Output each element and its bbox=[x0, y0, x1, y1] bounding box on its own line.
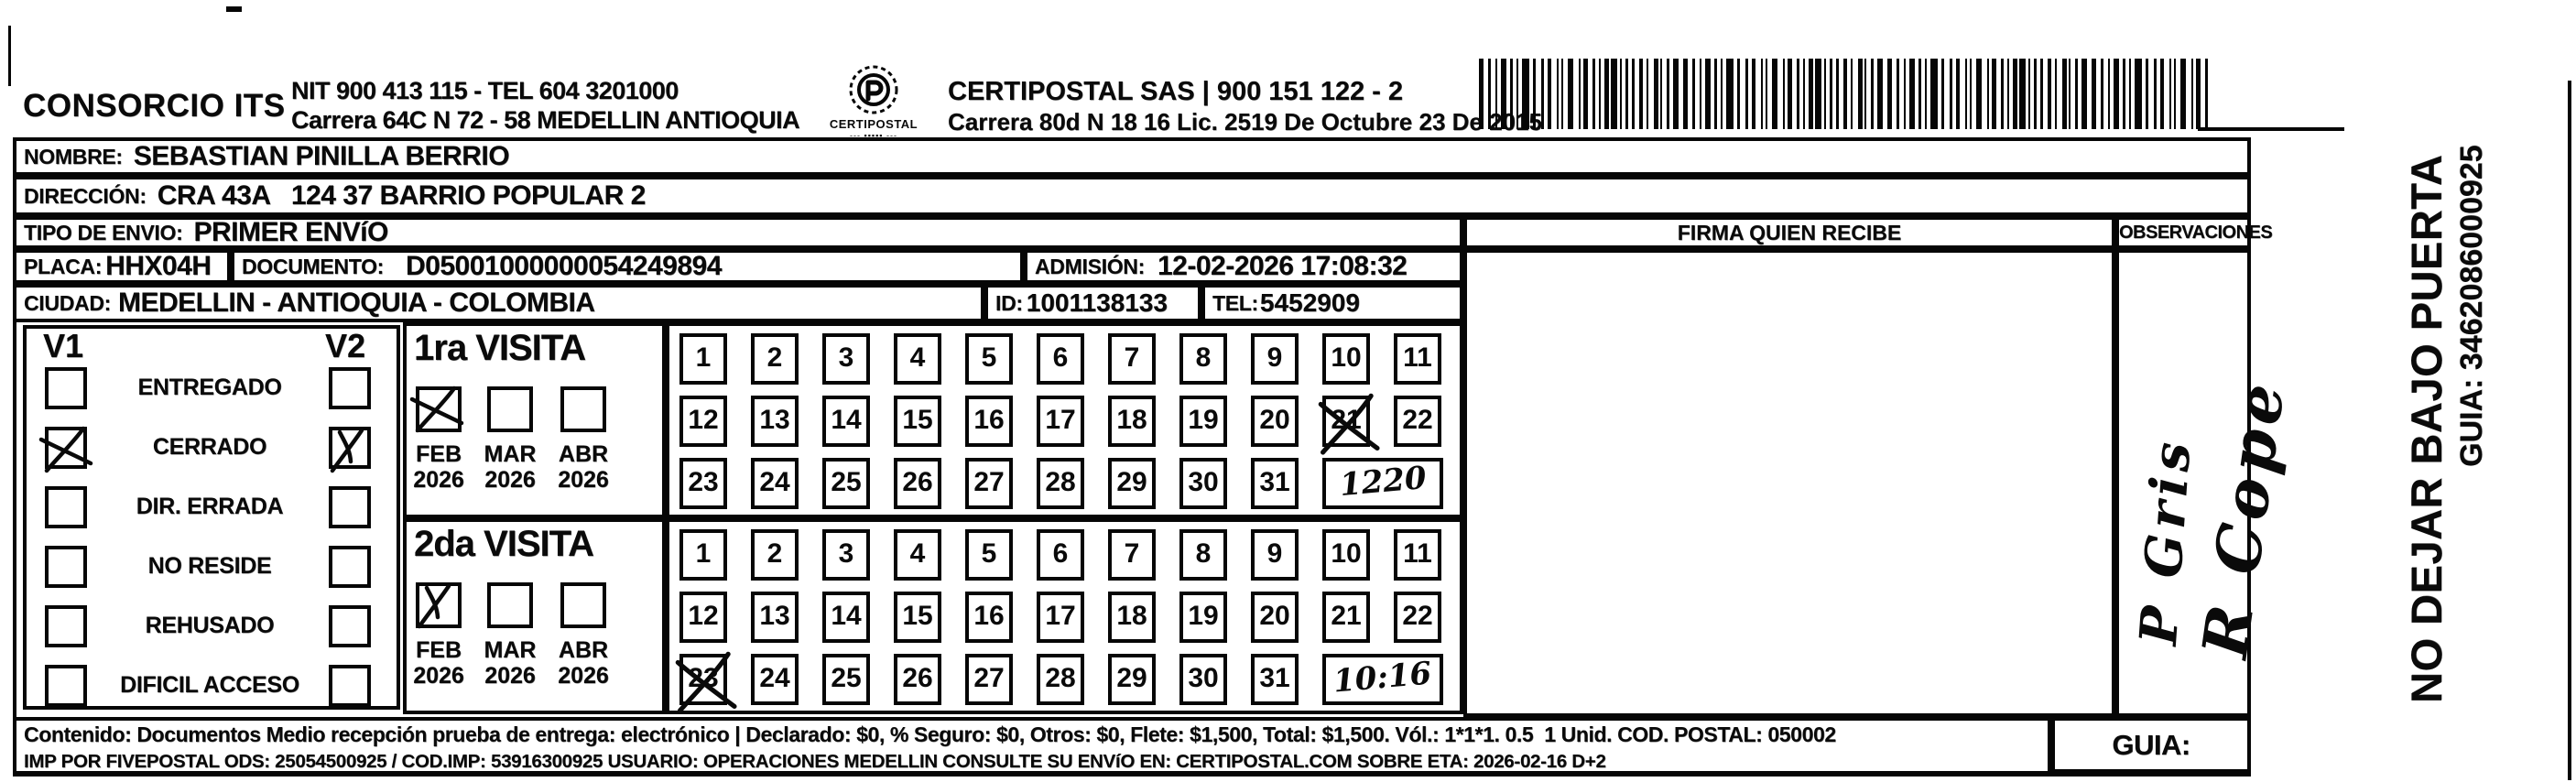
day-cell-14: 14 bbox=[822, 592, 870, 643]
direccion-label: DIRECCIÓN: bbox=[24, 184, 147, 209]
month-checkbox-feb bbox=[416, 582, 462, 628]
barcode-bar bbox=[1788, 59, 1792, 129]
month-checkbox-mar bbox=[487, 582, 533, 628]
handwritten-x-mark bbox=[414, 385, 465, 436]
visit-box-2: 2da VISITAFEB2026MAR2026ABR2026 bbox=[403, 518, 666, 714]
day-cell-13: 13 bbox=[751, 396, 799, 447]
month-checkbox-mar bbox=[487, 386, 533, 432]
barcode-bar bbox=[1783, 59, 1785, 129]
day-cell-10: 10 bbox=[1322, 333, 1370, 385]
barcode-bar bbox=[2034, 59, 2037, 129]
barcode-bar bbox=[1897, 59, 1899, 129]
barcode-bar bbox=[1941, 59, 1944, 129]
field-documento: DOCUMENTO: D05001000000054249894 bbox=[231, 249, 1024, 284]
day-cell-28: 28 bbox=[1037, 654, 1084, 705]
day-cell-27: 27 bbox=[965, 654, 1013, 705]
month-year-abr: 2026 bbox=[551, 663, 615, 690]
field-direccion: DIRECCIÓN: CRA 43A 124 37 BARRIO POPULAR… bbox=[13, 176, 2251, 216]
certipostal-logo-icon bbox=[848, 64, 899, 115]
barcode-bar bbox=[2129, 59, 2131, 129]
barcode-bar bbox=[1824, 59, 1826, 129]
month-label-abr: ABR bbox=[551, 441, 615, 468]
barcode-bar bbox=[1620, 59, 1622, 129]
checkbox-no-reside-v2 bbox=[329, 546, 371, 588]
barcode-bar bbox=[1611, 59, 1617, 129]
admision-label: ADMISIÓN: bbox=[1035, 255, 1145, 279]
company-name: CONSORCIO ITS bbox=[23, 88, 286, 125]
day-cell-16: 16 bbox=[965, 396, 1013, 447]
barcode-bar bbox=[1851, 59, 1853, 129]
day-cell-9: 9 bbox=[1251, 529, 1299, 581]
day-cell-27: 27 bbox=[965, 458, 1013, 509]
logo-caption: CERTIPOSTAL bbox=[821, 117, 927, 131]
field-placa: PLACA: HHX04H bbox=[13, 249, 231, 284]
day-cell-30: 30 bbox=[1179, 458, 1227, 509]
barcode-bar bbox=[1772, 59, 1777, 129]
barcode-bar bbox=[1647, 59, 1648, 129]
guia-box: GUIA: 3462086000925 bbox=[2051, 717, 2251, 773]
day-cell-25: 25 bbox=[822, 458, 870, 509]
admision-value: 12-02-2026 17:08:32 bbox=[1158, 251, 1407, 282]
day-cell-21: 21 bbox=[1322, 396, 1370, 447]
barcode-bar bbox=[2191, 59, 2193, 129]
barcode-bar bbox=[1843, 59, 1847, 129]
barcode-bar bbox=[2146, 59, 2148, 129]
month-year-feb: 2026 bbox=[407, 467, 471, 494]
footer-imp-line: IMP POR FIVEPOSTAL ODS: 25054500925 / CO… bbox=[16, 749, 2048, 774]
barcode-bar bbox=[1714, 59, 1717, 129]
barcode-bar bbox=[1970, 59, 1972, 129]
day-cell-31: 31 bbox=[1251, 654, 1299, 705]
no-dejar-warning: NO DEJAR BAJO PUERTA bbox=[2401, 62, 2451, 703]
barcode-bar bbox=[1815, 59, 1821, 129]
day-cell-7: 7 bbox=[1108, 333, 1156, 385]
barcode-bar bbox=[2007, 59, 2009, 129]
barcode-bar bbox=[1654, 59, 1658, 129]
barcode-bar bbox=[2108, 59, 2110, 129]
documento-label: DOCUMENTO: bbox=[242, 255, 384, 279]
month-year-mar: 2026 bbox=[478, 467, 542, 494]
scan-artifact bbox=[8, 26, 11, 86]
field-id: ID: 1001138133 bbox=[984, 284, 1201, 322]
barcode-bar bbox=[1516, 59, 1518, 129]
checkbox-dir-errada-v2 bbox=[329, 486, 371, 528]
barcode-bar bbox=[2062, 59, 2067, 129]
barcode-bar bbox=[2081, 59, 2087, 129]
day-cell-30: 30 bbox=[1179, 654, 1227, 705]
month-year-mar: 2026 bbox=[478, 663, 542, 690]
day-cell-26: 26 bbox=[894, 458, 941, 509]
month-label-mar: MAR bbox=[478, 441, 542, 468]
barcode-bar bbox=[1604, 59, 1609, 129]
partner-line: CERTIPOSTAL SAS | 900 151 122 - 2 bbox=[948, 77, 1403, 107]
scanned-delivery-form: CONSORCIO ITS NIT 900 413 115 - TEL 604 … bbox=[0, 0, 2576, 782]
barcode-bar bbox=[2040, 59, 2043, 129]
month-label-abr: ABR bbox=[551, 637, 615, 664]
barcode-bar bbox=[1976, 59, 1982, 129]
barcode-bar bbox=[1692, 59, 1695, 129]
placa-label: PLACA: bbox=[24, 255, 102, 279]
barcode-bar bbox=[1673, 59, 1679, 129]
barcode-bar bbox=[2180, 59, 2186, 129]
partner-address: Carrera 80d N 18 16 Lic. 2519 De Octubre… bbox=[948, 108, 1542, 136]
barcode-bar bbox=[1667, 59, 1669, 129]
day-cell-19: 19 bbox=[1179, 592, 1227, 643]
day-cell-3: 3 bbox=[822, 333, 870, 385]
tel-value: 5452909 bbox=[1260, 288, 1360, 318]
barcode-bar bbox=[2028, 59, 2030, 129]
day-cell-15: 15 bbox=[894, 396, 941, 447]
barcode-bar bbox=[1737, 59, 1740, 129]
footer-content-line: Contenido: Documentos Medio recepción pr… bbox=[16, 721, 2048, 749]
ciudad-value: MEDELLIN - ANTIOQUIA - COLOMBIA bbox=[118, 288, 595, 319]
barcode-bar bbox=[1579, 59, 1581, 129]
nombre-label: NOMBRE: bbox=[24, 145, 123, 169]
field-ciudad: CIUDAD: MEDELLIN - ANTIOQUIA - COLOMBIA bbox=[13, 284, 984, 322]
status-label-no-reside: NO RESIDE bbox=[100, 553, 320, 580]
company-address: Carrera 64C N 72 - 58 MEDELLIN ANTIOQUIA bbox=[291, 106, 799, 135]
checkbox-dir-errada-v1 bbox=[45, 486, 87, 528]
barcode-bar bbox=[1987, 59, 1989, 129]
barcode-bar bbox=[1488, 59, 1491, 129]
month-year-feb: 2026 bbox=[407, 663, 471, 690]
scan-artifact bbox=[2568, 81, 2571, 780]
day-cell-11: 11 bbox=[1394, 529, 1441, 581]
time-box: 10:16 bbox=[1322, 654, 1443, 705]
barcode-bar bbox=[1479, 59, 1484, 129]
barcode-bar bbox=[1950, 59, 1952, 129]
day-cell-2: 2 bbox=[751, 529, 799, 581]
day-cell-6: 6 bbox=[1037, 333, 1084, 385]
barcode-bar bbox=[1700, 59, 1701, 129]
month-checkbox-feb bbox=[416, 386, 462, 432]
month-label-feb: FEB bbox=[407, 637, 471, 664]
month-year-abr: 2026 bbox=[551, 467, 615, 494]
day-cell-17: 17 bbox=[1037, 592, 1084, 643]
barcode-bar bbox=[1501, 59, 1506, 129]
checkbox-cerrado-v2 bbox=[329, 427, 371, 469]
handwritten-cross-mark bbox=[676, 652, 734, 711]
day-cell-24: 24 bbox=[751, 654, 799, 705]
checkbox-cerrado-v1 bbox=[45, 427, 87, 469]
day-cell-1: 1 bbox=[679, 529, 727, 581]
barcode-bar bbox=[2048, 59, 2051, 129]
barcode-bar bbox=[2135, 59, 2142, 129]
checkbox-dificil-acceso-v1 bbox=[45, 665, 87, 707]
barcode-bar bbox=[2160, 59, 2164, 129]
barcode-bar bbox=[2092, 59, 2096, 129]
checkbox-no-reside-v1 bbox=[45, 546, 87, 588]
barcode-bar bbox=[2101, 59, 2103, 129]
month-label-feb: FEB bbox=[407, 441, 471, 468]
day-cell-16: 16 bbox=[965, 592, 1013, 643]
barcode-bar bbox=[1992, 59, 1996, 129]
day-cell-26: 26 bbox=[894, 654, 941, 705]
day-cell-4: 4 bbox=[894, 529, 941, 581]
checkbox-entregado-v2 bbox=[329, 367, 371, 409]
barcode-bar bbox=[1726, 59, 1734, 129]
scan-artifact bbox=[226, 6, 242, 12]
barcode-bar bbox=[1909, 59, 1915, 129]
day-cell-24: 24 bbox=[751, 458, 799, 509]
barcode-bar bbox=[2174, 59, 2176, 129]
barcode-bar bbox=[2205, 59, 2208, 129]
status-label-cerrado: CERRADO bbox=[100, 434, 320, 461]
barcode-bar bbox=[1522, 59, 1529, 129]
day-cell-22: 22 bbox=[1394, 592, 1441, 643]
month-checkbox-abr bbox=[560, 582, 606, 628]
visit-title: 2da VISITA bbox=[414, 524, 593, 565]
observaciones-header: OBSERVACIONES bbox=[2115, 216, 2251, 249]
day-grid-1: 1234567891011121314151617181920212223242… bbox=[666, 322, 1463, 518]
status-label-entregado: ENTREGADO bbox=[100, 375, 320, 401]
barcode-bar bbox=[1541, 59, 1544, 129]
day-cell-8: 8 bbox=[1179, 333, 1227, 385]
day-cell-18: 18 bbox=[1108, 396, 1156, 447]
day-cell-3: 3 bbox=[822, 529, 870, 581]
barcode-bar bbox=[1887, 59, 1892, 129]
barcode-bar bbox=[1557, 59, 1559, 129]
handwritten-x-mark bbox=[43, 425, 94, 476]
checkbox-dificil-acceso-v2 bbox=[329, 665, 371, 707]
barcode-bar bbox=[1495, 59, 1497, 129]
day-cell-17: 17 bbox=[1037, 396, 1084, 447]
barcode-bar bbox=[1548, 59, 1551, 129]
checkbox-rehusado-v1 bbox=[45, 605, 87, 647]
day-cell-1: 1 bbox=[679, 333, 727, 385]
barcode-bar bbox=[1660, 59, 1662, 129]
day-cell-9: 9 bbox=[1251, 333, 1299, 385]
checkbox-entregado-v1 bbox=[45, 367, 87, 409]
day-cell-6: 6 bbox=[1037, 529, 1084, 581]
field-tipo-envio: TIPO DE ENVIO: PRIMER ENVíO bbox=[13, 216, 1463, 249]
handwritten-cross-mark bbox=[1319, 394, 1377, 452]
day-cell-4: 4 bbox=[894, 333, 941, 385]
barcode-bar bbox=[1858, 59, 1863, 129]
barcode-bar bbox=[1592, 59, 1595, 129]
barcode-bar bbox=[2196, 59, 2201, 129]
barcode-bar bbox=[1830, 59, 1832, 129]
barcode-bar bbox=[1877, 59, 1883, 129]
barcode-bar bbox=[2154, 59, 2157, 129]
day-cell-2: 2 bbox=[751, 333, 799, 385]
day-cell-31: 31 bbox=[1251, 458, 1299, 509]
certipostal-logo: CERTIPOSTAL ‑‑‑ ▪▪▪▪▪ ‑‑‑ bbox=[821, 64, 927, 140]
day-cell-18: 18 bbox=[1108, 592, 1156, 643]
tipo-envio-value: PRIMER ENVíO bbox=[193, 217, 387, 248]
barcode-bar bbox=[1918, 59, 1921, 129]
handwritten-check-mark bbox=[414, 581, 465, 632]
day-cell-5: 5 bbox=[965, 333, 1013, 385]
field-nombre: NOMBRE: SEBASTIAN PINILLA BERRIO bbox=[13, 137, 2251, 176]
barcode-bar bbox=[1583, 59, 1588, 129]
day-cell-19: 19 bbox=[1179, 396, 1227, 447]
v1-column-title: V1 bbox=[43, 327, 83, 365]
barcode-bar bbox=[1965, 59, 1967, 129]
day-cell-28: 28 bbox=[1037, 458, 1084, 509]
checkbox-rehusado-v2 bbox=[329, 605, 371, 647]
day-cell-12: 12 bbox=[679, 592, 727, 643]
day-cell-25: 25 bbox=[822, 654, 870, 705]
day-cell-20: 20 bbox=[1251, 592, 1299, 643]
day-cell-8: 8 bbox=[1179, 529, 1227, 581]
company-nit-tel: NIT 900 413 115 - TEL 604 3201000 bbox=[291, 77, 679, 105]
barcode-bar bbox=[1803, 59, 1805, 129]
day-cell-23: 23 bbox=[679, 458, 727, 509]
barcode-bar bbox=[2114, 59, 2119, 129]
day-cell-10: 10 bbox=[1322, 529, 1370, 581]
barcode-bar bbox=[1533, 59, 1536, 129]
barcode-bar bbox=[1864, 59, 1866, 129]
time-box: 1220 bbox=[1322, 458, 1443, 509]
barcode-bar bbox=[1632, 59, 1635, 129]
status-panel: V1 V2 ENTREGADOCERRADODIR. ERRADANO RESI… bbox=[23, 325, 400, 710]
barcode-bar bbox=[1930, 59, 1938, 129]
footer-box: Contenido: Documentos Medio recepción pr… bbox=[13, 717, 2051, 777]
barcode bbox=[1479, 59, 2228, 129]
day-cell-21: 21 bbox=[1322, 592, 1370, 643]
documento-value: D05001000000054249894 bbox=[406, 251, 722, 282]
barcode-bar bbox=[2069, 59, 2071, 129]
barcode-bar bbox=[2123, 59, 2125, 129]
day-cell-15: 15 bbox=[894, 592, 941, 643]
handwritten-check-mark bbox=[327, 425, 378, 476]
barcode-bar bbox=[1752, 59, 1755, 129]
barcode-bar bbox=[1925, 59, 1927, 129]
handwritten-time: 1220 bbox=[1338, 458, 1428, 505]
field-admision: ADMISIÓN: 12-02-2026 17:08:32 bbox=[1024, 249, 1463, 284]
day-cell-7: 7 bbox=[1108, 529, 1156, 581]
day-cell-20: 20 bbox=[1251, 396, 1299, 447]
handwritten-time: 10:16 bbox=[1332, 653, 1434, 701]
barcode-bar bbox=[1904, 59, 1906, 129]
visit-box-1: 1ra VISITAFEB2026MAR2026ABR2026 bbox=[403, 322, 666, 518]
day-cell-22: 22 bbox=[1394, 396, 1441, 447]
firma-area bbox=[1463, 249, 2115, 717]
day-cell-14: 14 bbox=[822, 396, 870, 447]
barcode-bar bbox=[1639, 59, 1643, 129]
status-label-rehusado: REHUSADO bbox=[100, 613, 320, 639]
barcode-bar bbox=[2001, 59, 2004, 129]
id-value: 1001138133 bbox=[1027, 288, 1168, 318]
direccion-value: CRA 43A 124 37 BARRIO POPULAR 2 bbox=[158, 180, 646, 212]
tel-label: TEL: bbox=[1212, 291, 1258, 316]
barcode-bar bbox=[1510, 59, 1513, 129]
barcode-bar bbox=[1721, 59, 1723, 129]
barcode-bar bbox=[2019, 59, 2026, 129]
barcode-bar bbox=[2013, 59, 2017, 129]
barcode-bar bbox=[1625, 59, 1628, 129]
side-strip: NO DEJAR BAJO PUERTA GUIA: 3462086000925 bbox=[2401, 62, 2490, 703]
day-cell-13: 13 bbox=[751, 592, 799, 643]
barcode-bar bbox=[1683, 59, 1688, 129]
barcode-bar bbox=[1956, 59, 1960, 129]
barcode-bar bbox=[1568, 59, 1573, 129]
barcode-bar bbox=[2055, 59, 2057, 129]
side-guia: GUIA: 3462086000925 bbox=[2454, 62, 2490, 467]
v2-column-title: V2 bbox=[325, 327, 365, 365]
barcode-bar bbox=[2169, 59, 2171, 129]
day-cell-29: 29 bbox=[1108, 654, 1156, 705]
month-checkbox-abr bbox=[560, 386, 606, 432]
barcode-bar bbox=[1745, 59, 1748, 129]
field-tel: TEL: 5452909 bbox=[1201, 284, 1463, 322]
barcode-bar bbox=[1705, 59, 1711, 129]
day-cell-29: 29 bbox=[1108, 458, 1156, 509]
status-label-dir-errada: DIR. ERRADA bbox=[100, 494, 320, 520]
placa-value: HHX04H bbox=[105, 251, 211, 282]
day-grid-2: 1234567891011121314151617181920212223242… bbox=[666, 518, 1463, 714]
nombre-value: SEBASTIAN PINILLA BERRIO bbox=[134, 141, 509, 172]
day-cell-11: 11 bbox=[1394, 333, 1441, 385]
barcode-bar bbox=[1871, 59, 1874, 129]
barcode-bar bbox=[1761, 59, 1763, 129]
visit-title: 1ra VISITA bbox=[414, 328, 585, 369]
barcode-bar bbox=[1561, 59, 1563, 129]
day-cell-12: 12 bbox=[679, 396, 727, 447]
id-label: ID: bbox=[995, 291, 1023, 316]
firma-header: FIRMA QUIEN RECIBE bbox=[1463, 216, 2115, 249]
barcode-bar bbox=[1836, 59, 1839, 129]
day-cell-23: 23 bbox=[679, 654, 727, 705]
status-label-dificil-acceso: DIFICIL ACCESO bbox=[100, 672, 320, 699]
barcode-bar bbox=[2075, 59, 2078, 129]
barcode-bar bbox=[1797, 59, 1799, 129]
month-label-mar: MAR bbox=[478, 637, 542, 664]
ciudad-label: CIUDAD: bbox=[24, 291, 111, 316]
barcode-bar bbox=[1599, 59, 1601, 129]
tipo-envio-label: TIPO DE ENVIO: bbox=[24, 221, 182, 245]
day-cell-5: 5 bbox=[965, 529, 1013, 581]
barcode-bar bbox=[1809, 59, 1813, 129]
barcode-bar bbox=[1766, 59, 1767, 129]
